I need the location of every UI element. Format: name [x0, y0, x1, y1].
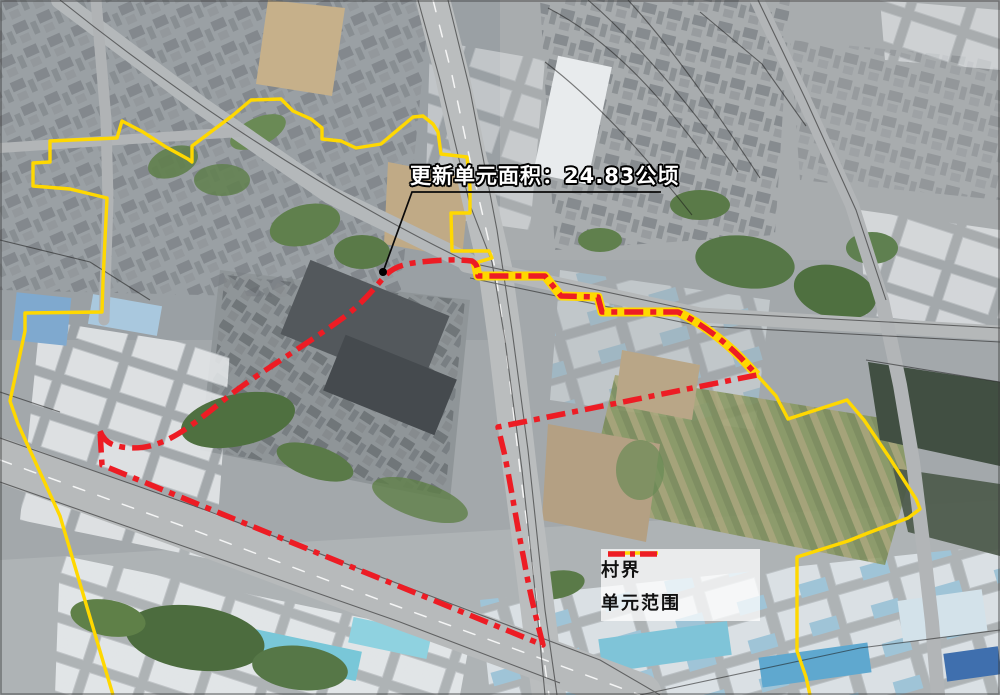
legend: 村界 单元范围: [601, 549, 760, 621]
unit-scope-swatch: [607, 549, 659, 559]
map-stage: 更新单元面积：24.83公顷 村界 单元范围: [0, 0, 1000, 695]
satellite-map-svg: [0, 0, 1000, 695]
legend-item-village-boundary: 村界: [601, 557, 760, 581]
area-annotation: 更新单元面积：24.83公顷: [410, 160, 679, 190]
legend-label-village-boundary: 村界: [601, 556, 641, 582]
legend-item-unit-scope: 单元范围: [601, 590, 760, 614]
annotation-anchor-dot: [379, 268, 387, 276]
legend-label-unit-scope: 单元范围: [601, 589, 681, 615]
